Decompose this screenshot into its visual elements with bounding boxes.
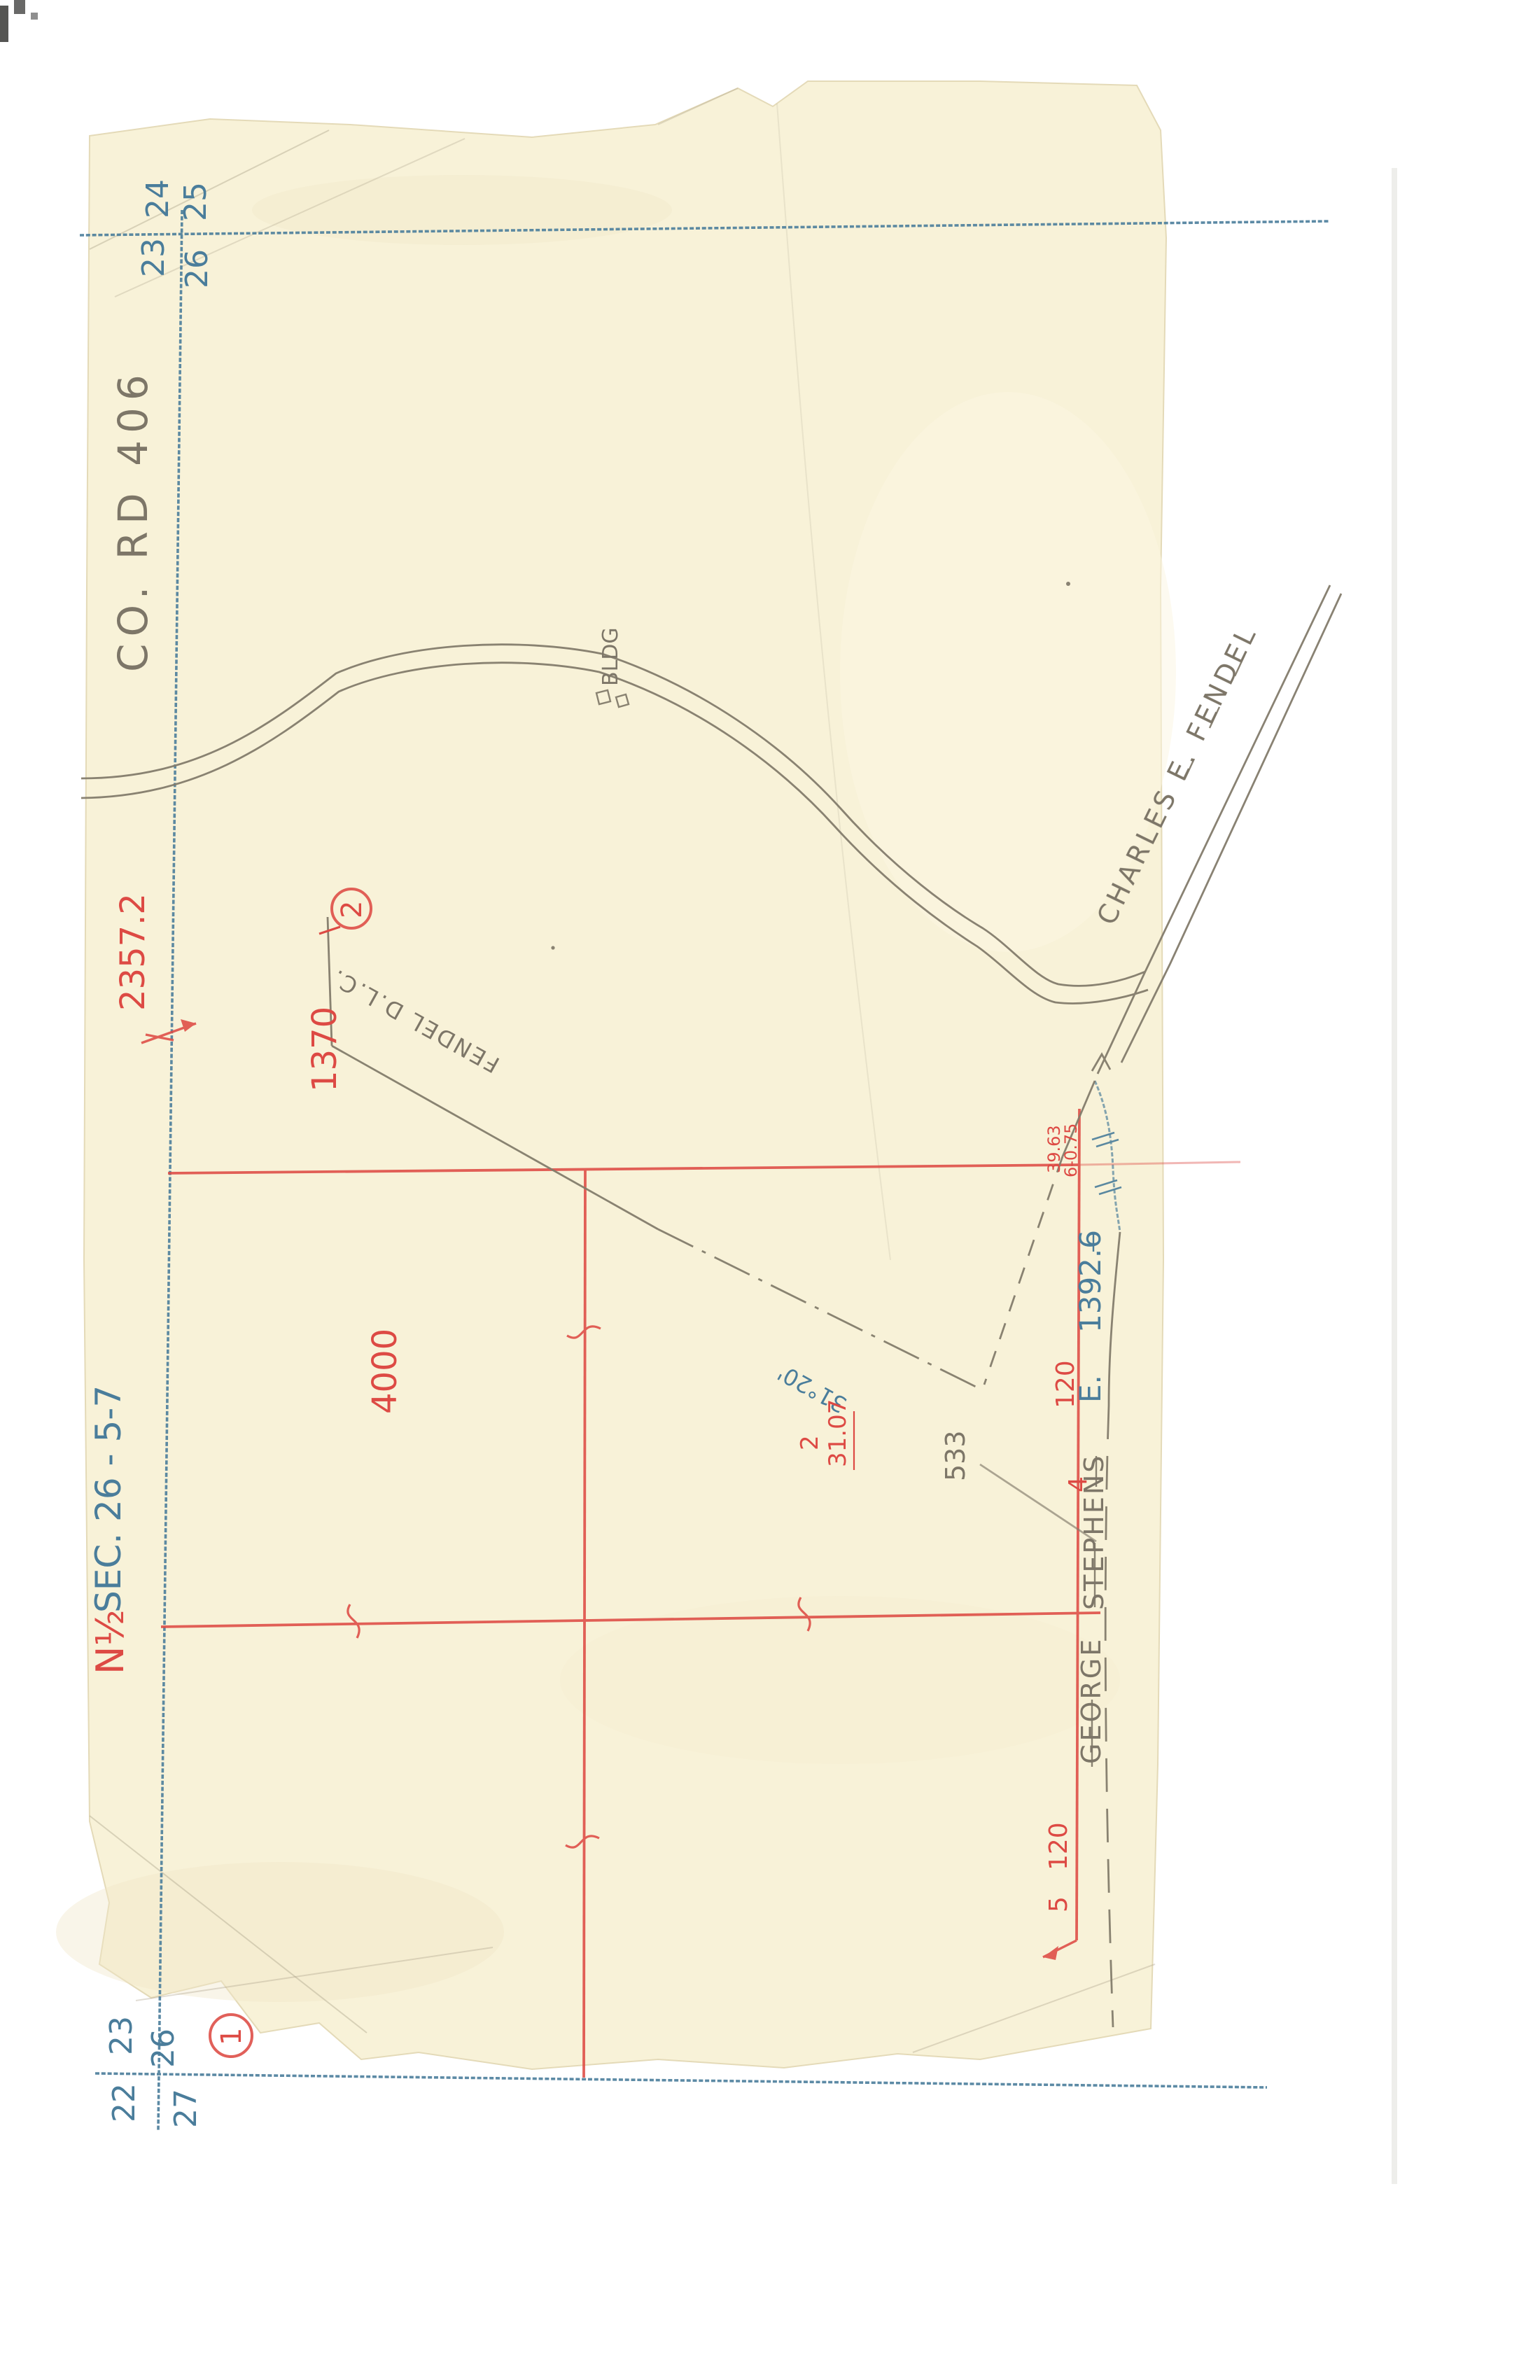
paper-outline bbox=[84, 81, 1166, 2069]
survey-plat-scan: 24 25 23 26 23 26 22 27 CO. RD 406 2357.… bbox=[0, 0, 1540, 2380]
owner-east-last: STEPHENS bbox=[1079, 1454, 1109, 1610]
dim-120-bottom: 120 bbox=[1044, 1822, 1073, 1870]
county-road-label: CO. RD 406 bbox=[109, 367, 157, 672]
dim-5: 5 bbox=[1044, 1896, 1073, 1912]
dim-2357: 2357.2 bbox=[113, 893, 153, 1011]
owner-east-first: GEORGE bbox=[1076, 1637, 1107, 1764]
blue-section-line-bottom bbox=[95, 2073, 1267, 2087]
section-number-top-ne: 25 bbox=[178, 182, 213, 221]
bldg-label: BLDG bbox=[598, 627, 623, 686]
section-label-red: N½ bbox=[88, 1609, 132, 1674]
section-number-top-sw: 23 bbox=[136, 238, 171, 277]
section-number-bottom-ne: 26 bbox=[146, 2029, 181, 2068]
section-number-bottom-sw: 22 bbox=[106, 2083, 142, 2122]
paper-sheet bbox=[56, 81, 1176, 2069]
dim-4000: 4000 bbox=[365, 1329, 405, 1414]
parcel-1-number: 1 bbox=[216, 2028, 248, 2045]
section-number-top-se: 26 bbox=[179, 249, 215, 288]
dim-1370: 1370 bbox=[305, 1007, 344, 1092]
red-line-west-vertical bbox=[584, 1169, 585, 2078]
section-number-bottom-se: 27 bbox=[168, 2089, 204, 2128]
dim-533: 533 bbox=[940, 1430, 971, 1481]
dim-120-top: 120 bbox=[1051, 1360, 1080, 1408]
parcel-2-number: 2 bbox=[336, 901, 368, 918]
section-number-top-nw: 24 bbox=[140, 179, 176, 218]
east-line-value: 1392.6 bbox=[1073, 1230, 1107, 1333]
section-number-bottom-nw: 23 bbox=[104, 2016, 139, 2055]
tri-dim-right: 6-0.75 bbox=[1061, 1123, 1081, 1177]
dim-3107: 31.07 bbox=[824, 1399, 852, 1467]
scanned-document-page: 24 25 23 26 23 26 22 27 CO. RD 406 2357.… bbox=[0, 0, 1540, 2380]
section-label-blue: SEC. 26 - 5-7 bbox=[88, 1385, 129, 1613]
dim-2: 2 bbox=[796, 1435, 824, 1450]
